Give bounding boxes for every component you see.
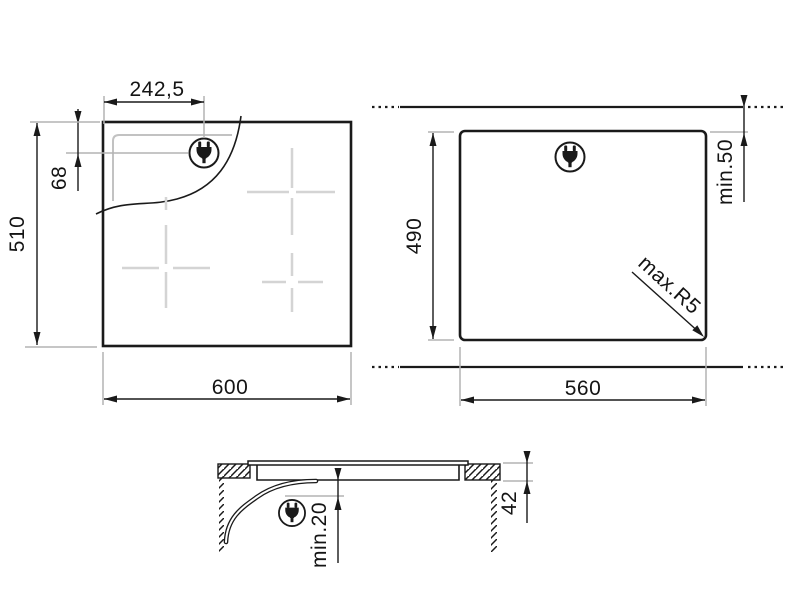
dimension-label-plug-offset-y: 68 [48, 166, 71, 190]
dimension-rear-clearance: min.50 [710, 95, 748, 205]
dimension-hob-height: 42 [498, 451, 533, 523]
dimension-label-plug-offset-x: 242,5 [129, 78, 184, 101]
dimension-label-hob-depth: 510 [6, 216, 29, 253]
dimension-hob-width: 600 [103, 352, 351, 405]
worktop-section-right [465, 464, 500, 480]
side-view: min.20 42 [218, 451, 533, 568]
cabinet-wall-left [219, 478, 224, 553]
installation-diagram-page: 242,5 68 510 600 [0, 0, 800, 600]
hob-glass-section [248, 461, 468, 465]
dimension-label-cutout-depth: 490 [403, 218, 426, 255]
dimension-label-clearance-below: min.20 [308, 502, 331, 568]
dimension-cutout-width: 560 [460, 347, 706, 406]
hob-outline [103, 122, 351, 346]
dimension-label-hob-height: 42 [498, 491, 521, 515]
dimension-label-cutout-width: 560 [565, 377, 602, 400]
power-plug-icon [556, 143, 585, 172]
cabinet-wall-right [491, 480, 497, 552]
dimension-cutout-depth: 490 [403, 132, 454, 340]
worktop-section-left [218, 464, 250, 478]
hob-installation-diagram: 242,5 68 510 600 [0, 0, 800, 600]
dimension-label-rear-clearance: min.50 [714, 139, 737, 205]
dimension-label-hob-width: 600 [212, 376, 249, 399]
dimension-hob-depth: 510 [6, 122, 100, 347]
power-plug-icon [190, 139, 219, 168]
hob-body-section [257, 465, 459, 480]
cutout-view: 490 560 min.50 max.R5 [372, 95, 786, 406]
power-plug-icon [279, 500, 305, 526]
top-view: 242,5 68 510 600 [6, 78, 351, 405]
